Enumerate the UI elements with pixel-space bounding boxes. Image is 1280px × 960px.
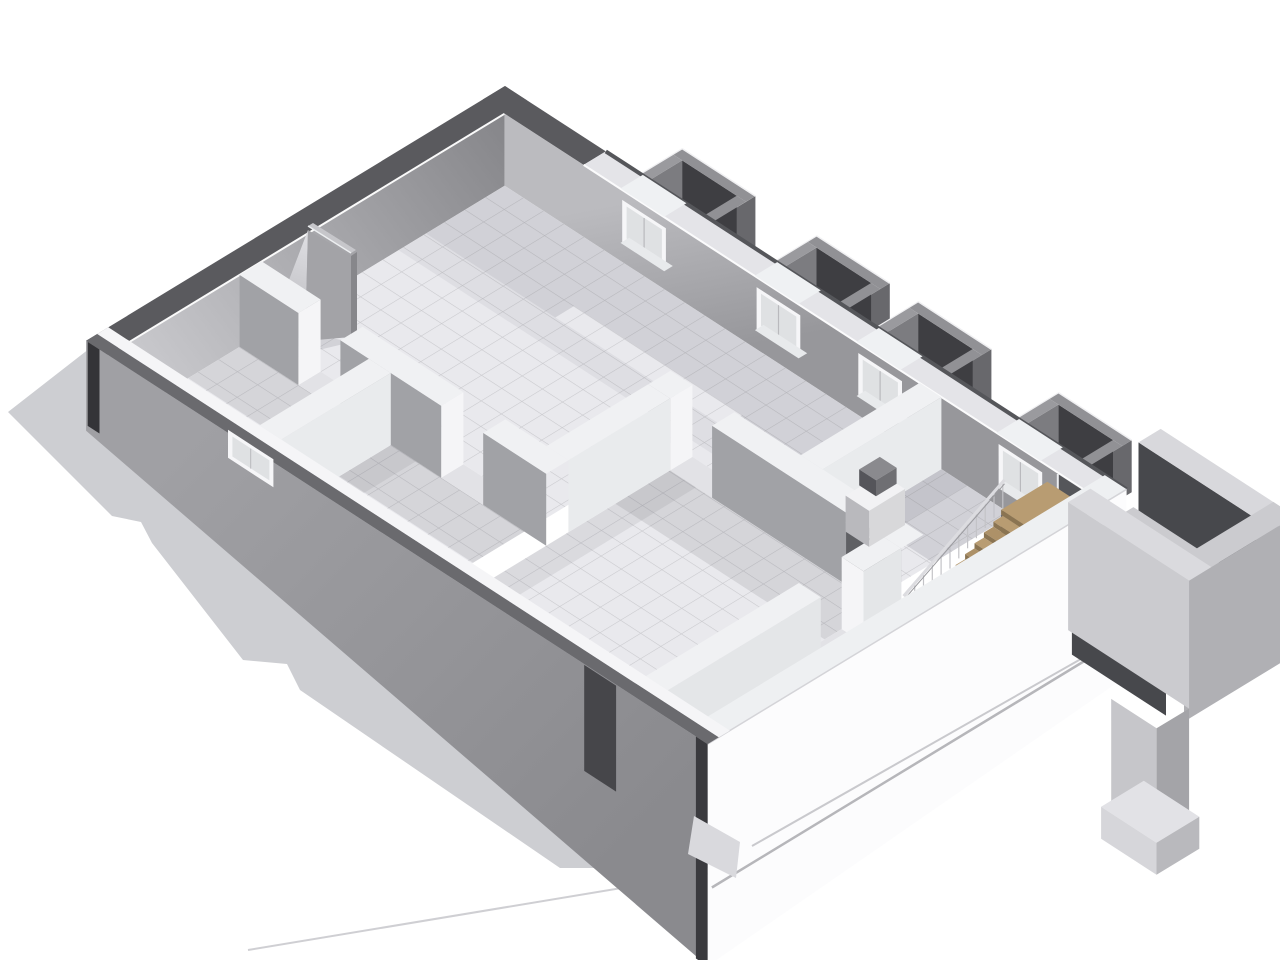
floorplan-render [0,0,1280,960]
left-wall-door [584,665,616,792]
face [584,665,616,792]
face [351,252,357,337]
face [298,300,320,386]
face [670,385,692,471]
entry-pier [1101,699,1199,875]
face [88,342,100,434]
scene-root [8,86,1280,960]
face [441,392,463,478]
isometric-floorplan-svg [0,0,1280,960]
